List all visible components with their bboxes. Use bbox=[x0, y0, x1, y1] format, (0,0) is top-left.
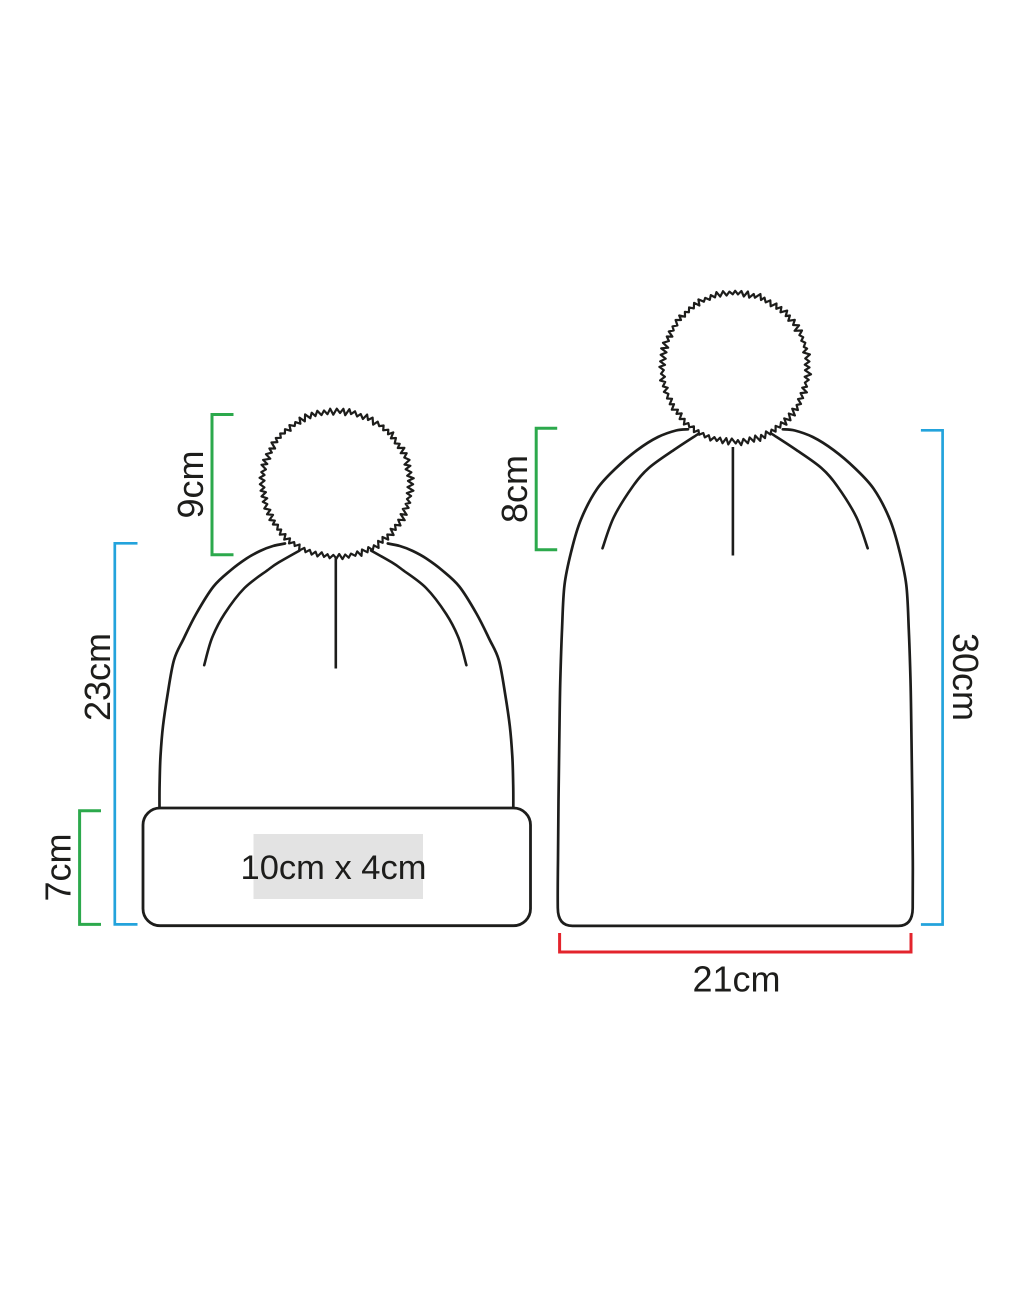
svg-text:23cm: 23cm bbox=[77, 633, 118, 721]
svg-text:21cm: 21cm bbox=[692, 959, 780, 1000]
svg-text:8cm: 8cm bbox=[494, 455, 535, 523]
svg-text:10cm x 4cm: 10cm x 4cm bbox=[241, 849, 427, 887]
svg-text:30cm: 30cm bbox=[945, 633, 986, 721]
svg-text:7cm: 7cm bbox=[38, 833, 79, 901]
svg-text:9cm: 9cm bbox=[170, 450, 211, 518]
